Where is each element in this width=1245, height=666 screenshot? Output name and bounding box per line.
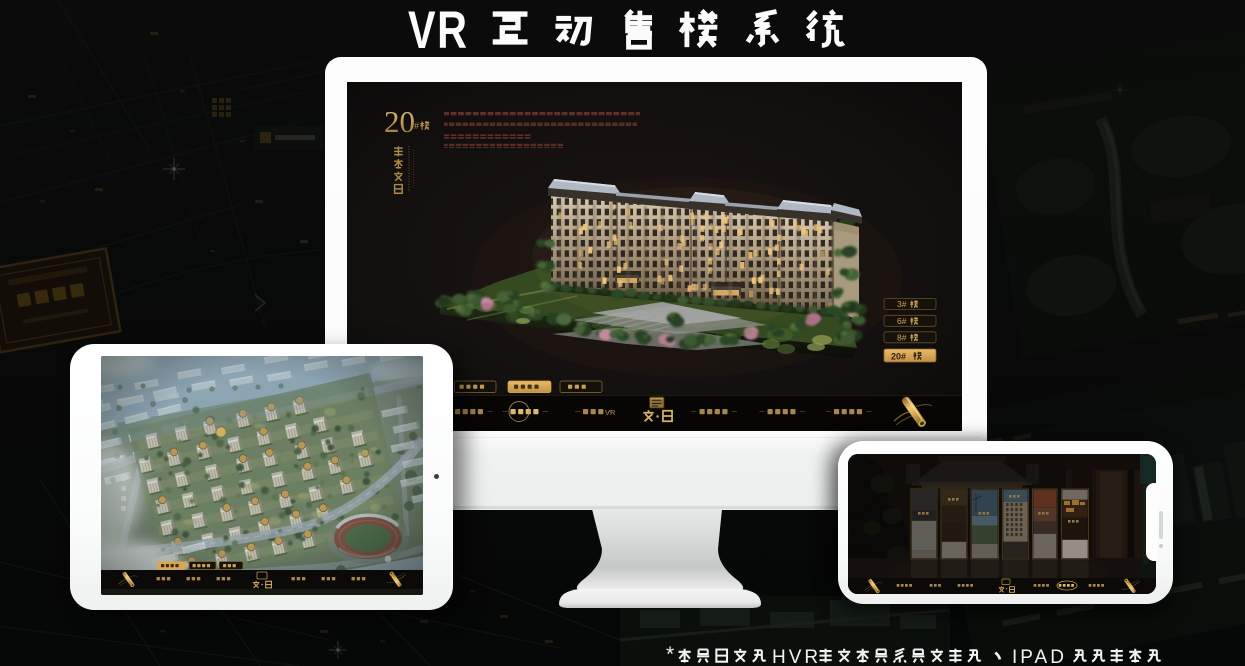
svg-text:VR: VR bbox=[408, 1, 469, 60]
svg-text:6#: 6# bbox=[897, 316, 907, 326]
svg-text:HVR: HVR bbox=[772, 647, 821, 666]
svg-text:VR: VR bbox=[605, 408, 616, 417]
svg-text:20#: 20# bbox=[891, 351, 906, 361]
svg-text:3#: 3# bbox=[897, 299, 907, 309]
svg-text:*: * bbox=[666, 643, 674, 666]
svg-text:20: 20 bbox=[384, 104, 415, 139]
svg-text:#: # bbox=[414, 121, 419, 131]
svg-text:IPAD: IPAD bbox=[1012, 647, 1067, 666]
svg-text:8#: 8# bbox=[897, 332, 907, 342]
